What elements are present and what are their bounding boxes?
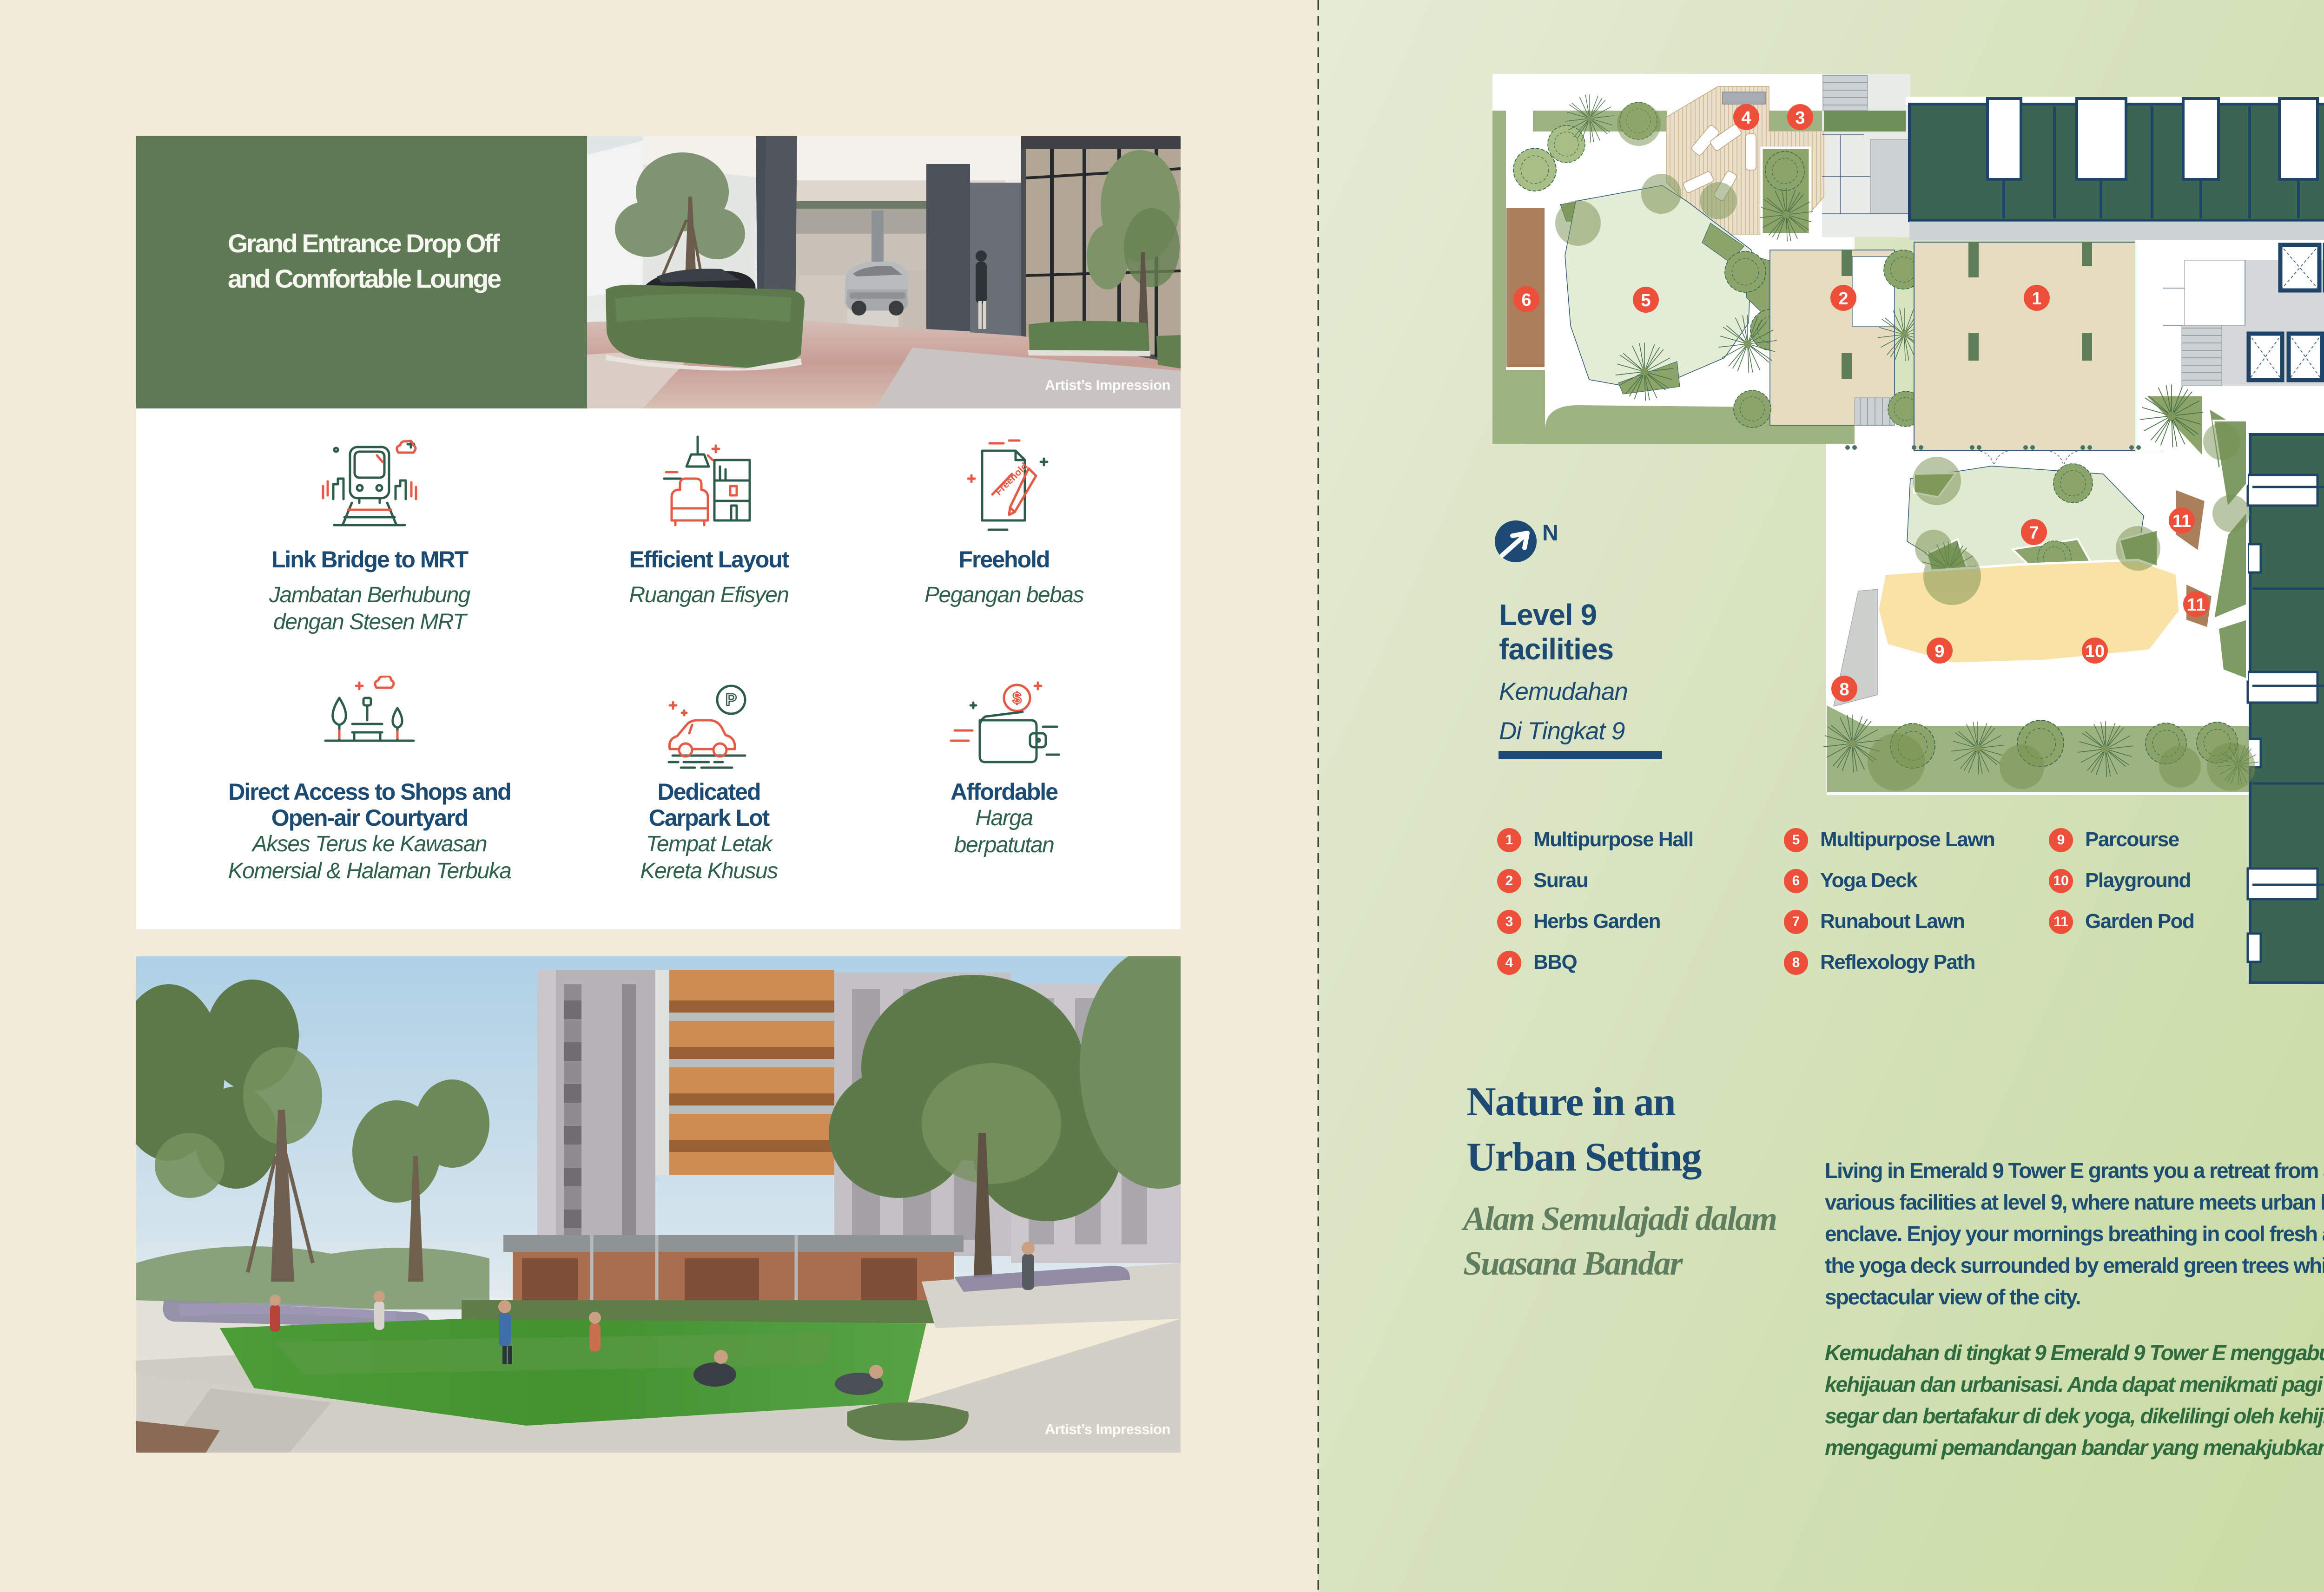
svg-text:2: 2 [1838, 289, 1848, 309]
svg-text:11: 11 [2172, 512, 2191, 531]
svg-text:N: N [1542, 521, 1558, 546]
svg-text:3: 3 [1795, 108, 1805, 128]
svg-text:5: 5 [1641, 291, 1651, 310]
svg-text:7: 7 [2029, 523, 2039, 543]
svg-text:4: 4 [1741, 108, 1751, 128]
svg-text:$: $ [1013, 690, 1022, 707]
svg-text:6: 6 [1521, 290, 1531, 310]
svg-text:8: 8 [1839, 680, 1849, 699]
svg-text:9: 9 [1934, 642, 1944, 661]
svg-text:10: 10 [2085, 642, 2105, 661]
svg-text:1: 1 [2032, 289, 2041, 309]
svg-text:P: P [726, 690, 737, 709]
svg-text:11: 11 [2187, 595, 2205, 615]
